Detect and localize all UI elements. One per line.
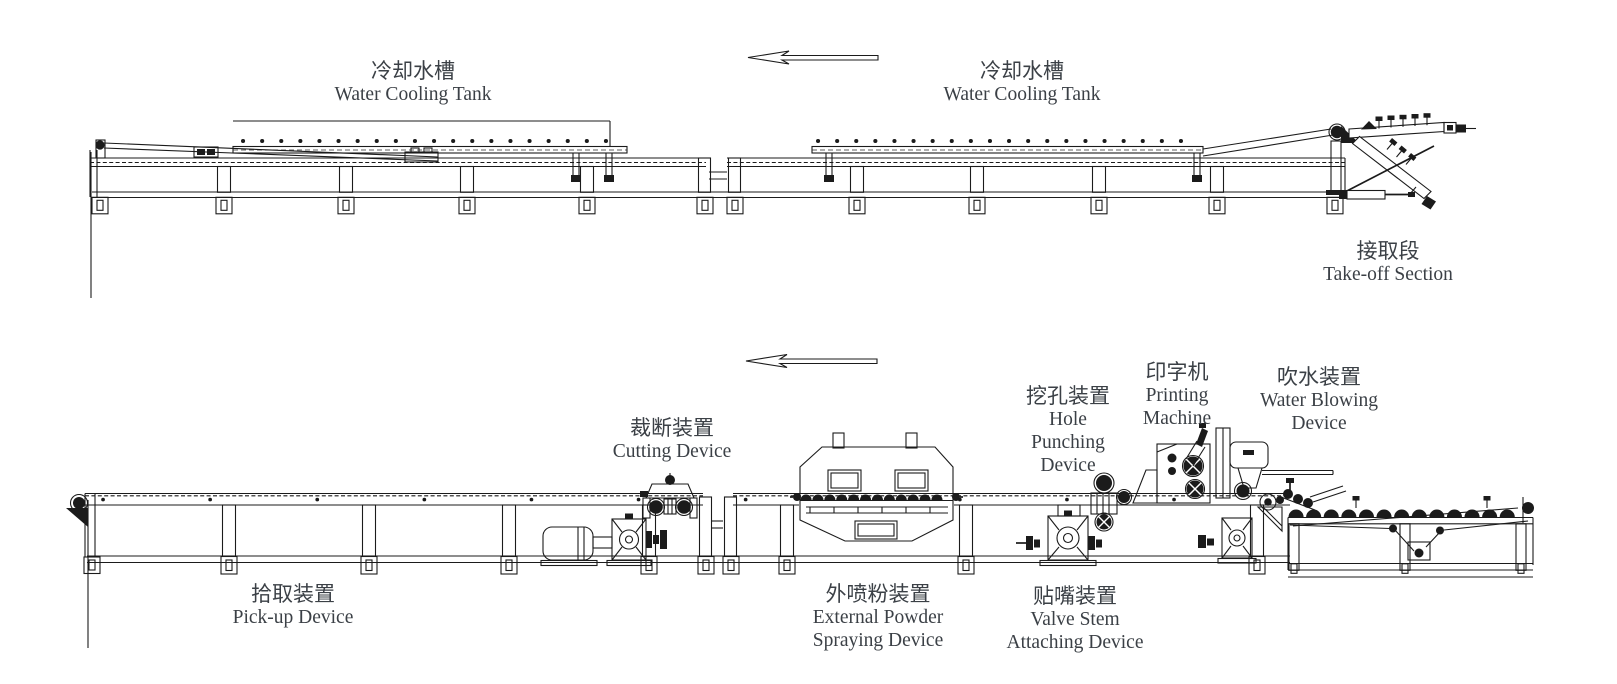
label-en: Machine [1143,407,1211,430]
label-en: Water Blowing [1260,389,1378,412]
label-en: Water Cooling Tank [334,83,491,106]
external-powder-spraying-device-drawing [790,433,963,541]
label-zh: 贴嘴装置 [1007,585,1144,608]
label-en: Attaching Device [1007,631,1144,654]
flow-direction-arrow-icon [748,51,878,64]
label-zh: 冷却水槽 [943,60,1100,83]
take-off-table-drawing [1281,478,1534,577]
take-off-section-drawing [1203,113,1476,209]
label-water-cooling-tank-2: 冷却水槽 Water Cooling Tank [943,60,1100,106]
label-en: Water Cooling Tank [943,83,1100,106]
label-take-off-section: 接取段 Take-off Section [1323,240,1453,286]
label-en: Cutting Device [613,440,732,463]
flow-direction-arrow-icon [746,355,877,368]
water-cooling-tank-conveyor-drawing [90,121,1345,298]
label-zh: 冷却水槽 [334,60,491,83]
label-cutting-device: 裁断装置 Cutting Device [613,417,732,463]
label-zh: 拾取装置 [233,583,354,606]
label-en: Hole [1026,408,1110,431]
label-en: Take-off Section [1323,263,1453,286]
label-en: Punching [1026,431,1110,454]
label-en: Device [1260,412,1378,435]
cutting-device-drawing [541,473,697,566]
label-printing-machine: 印字机 Printing Machine [1143,361,1211,430]
water-cooling-tank-2-drawing [812,141,1203,182]
label-en: Printing [1143,384,1211,407]
label-zh: 吹水装置 [1260,366,1378,389]
label-valve-stem-attaching-device: 贴嘴装置 Valve Stem Attaching Device [1007,585,1144,654]
label-en: External Powder [813,606,944,629]
label-zh: 外喷粉装置 [813,583,944,606]
label-external-powder-spraying-device: 外喷粉装置 External Powder Spraying Device [813,583,944,652]
label-zh: 挖孔装置 [1026,385,1110,408]
label-water-cooling-tank-1: 冷却水槽 Water Cooling Tank [334,60,491,106]
label-pick-up-device: 拾取装置 Pick-up Device [233,583,354,629]
label-zh: 接取段 [1323,240,1453,263]
machinery-line-art [0,0,1617,684]
label-en: Spraying Device [813,629,944,652]
label-en: Device [1026,454,1110,477]
label-hole-punching-device: 挖孔装置 Hole Punching Device [1026,385,1110,477]
label-water-blowing-device: 吹水装置 Water Blowing Device [1260,366,1378,435]
label-zh: 裁断装置 [613,417,732,440]
printing-machine-drawing [1133,423,1210,503]
label-en: Valve Stem [1007,608,1144,631]
label-en: Pick-up Device [233,606,354,629]
diagram-canvas: 冷却水槽 Water Cooling Tank 冷却水槽 Water Cooli… [0,0,1617,684]
label-zh: 印字机 [1143,361,1211,384]
hole-punching-device-drawing [1091,473,1132,531]
